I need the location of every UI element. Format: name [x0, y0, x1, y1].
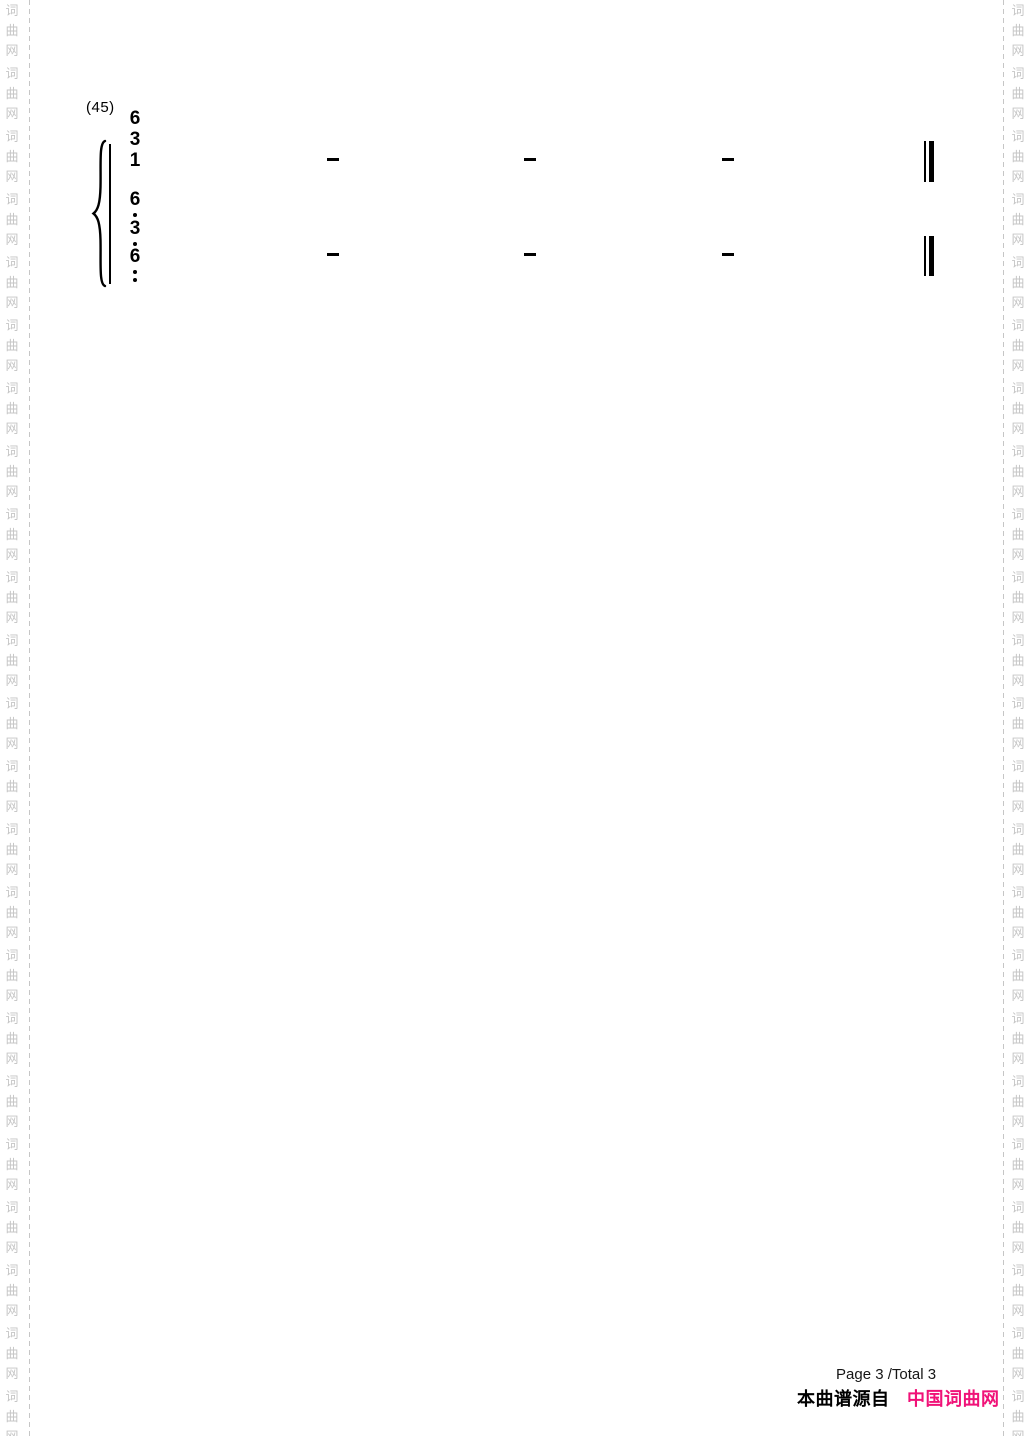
watermark-character: 曲: [1009, 84, 1027, 104]
watermark-character: 网: [1009, 167, 1027, 187]
watermark-character: 网: [3, 293, 21, 313]
watermark-character: 词: [1009, 820, 1027, 840]
watermark-character: 词: [1009, 1387, 1027, 1407]
watermark-group: 词曲网: [3, 1198, 21, 1258]
watermark-character: 网: [3, 1301, 21, 1321]
watermark-character: 网: [3, 1364, 21, 1384]
watermark-character: 网: [3, 1112, 21, 1132]
watermark-character: 网: [1009, 545, 1027, 565]
watermark-character: 曲: [1009, 525, 1027, 545]
watermark-group: 词曲网: [3, 883, 21, 943]
watermark-character: 网: [1009, 797, 1027, 817]
watermark-character: 网: [1009, 1175, 1027, 1195]
sustain-dash: [524, 253, 536, 256]
watermark-group: 词曲网: [1009, 442, 1027, 502]
watermark-character: 曲: [3, 1407, 21, 1427]
watermark-character: 词: [3, 379, 21, 399]
watermark-column-left: 词曲网词曲网词曲网词曲网词曲网词曲网词曲网词曲网词曲网词曲网词曲网词曲网词曲网词…: [3, 1, 21, 1436]
watermark-character: 网: [3, 923, 21, 943]
watermark-character: 网: [3, 41, 21, 61]
page-info: Page 3 /Total 3: [836, 1366, 936, 1383]
watermark-character: 词: [1009, 379, 1027, 399]
final-barline-thin: [924, 236, 926, 276]
watermark-character: 网: [1009, 1301, 1027, 1321]
watermark-group: 词曲网: [3, 127, 21, 187]
watermark-character: 曲: [1009, 147, 1027, 167]
watermark-character: 网: [3, 797, 21, 817]
watermark-character: 网: [3, 608, 21, 628]
watermark-character: 网: [1009, 1364, 1027, 1384]
watermark-character: 网: [3, 482, 21, 502]
final-barline-thick: [929, 141, 934, 182]
watermark-character: 曲: [1009, 273, 1027, 293]
watermark-character: 网: [1009, 671, 1027, 691]
watermark-character: 词: [3, 505, 21, 525]
jianpu-note-lower: 6: [126, 190, 144, 210]
watermark-group: 词曲网: [1009, 1387, 1027, 1436]
watermark-character: 曲: [1009, 1407, 1027, 1427]
sustain-dash: [524, 158, 536, 161]
watermark-character: 网: [1009, 986, 1027, 1006]
watermark-group: 词曲网: [1009, 505, 1027, 565]
watermark-character: 曲: [1009, 966, 1027, 986]
final-barline-thick: [929, 236, 934, 276]
watermark-character: 曲: [3, 777, 21, 797]
watermark-group: 词曲网: [1009, 1009, 1027, 1069]
watermark-character: 曲: [1009, 1281, 1027, 1301]
watermark-character: 曲: [1009, 588, 1027, 608]
watermark-group: 词曲网: [1009, 1198, 1027, 1258]
jianpu-note-lower: 3: [126, 219, 144, 239]
watermark-character: 曲: [1009, 903, 1027, 923]
watermark-character: 网: [1009, 608, 1027, 628]
watermark-group: 词曲网: [1009, 883, 1027, 943]
watermark-character: 曲: [3, 840, 21, 860]
watermark-divider-left: [29, 0, 30, 1436]
watermark-character: 曲: [1009, 651, 1027, 671]
watermark-character: 词: [3, 694, 21, 714]
watermark-character: 词: [3, 631, 21, 651]
watermark-group: 词曲网: [3, 946, 21, 1006]
watermark-character: 词: [1009, 1009, 1027, 1029]
watermark-character: 网: [1009, 1049, 1027, 1069]
system-brace-icon: [90, 139, 108, 288]
watermark-group: 词曲网: [1009, 820, 1027, 880]
watermark-character: 词: [1009, 64, 1027, 84]
watermark-character: 曲: [1009, 210, 1027, 230]
watermark-group: 词曲网: [3, 379, 21, 439]
watermark-group: 词曲网: [1009, 316, 1027, 376]
watermark-character: 网: [1009, 734, 1027, 754]
watermark-group: 词曲网: [3, 820, 21, 880]
watermark-character: 曲: [1009, 840, 1027, 860]
watermark-character: 曲: [3, 1344, 21, 1364]
jianpu-note-upper: 1: [126, 151, 144, 171]
watermark-character: 词: [3, 1198, 21, 1218]
watermark-character: 曲: [3, 903, 21, 923]
watermark-character: 词: [3, 1135, 21, 1155]
watermark-character: 曲: [1009, 1029, 1027, 1049]
watermark-character: 曲: [1009, 1344, 1027, 1364]
watermark-character: 曲: [3, 1029, 21, 1049]
watermark-group: 词曲网: [3, 316, 21, 376]
jianpu-note-upper: 3: [126, 130, 144, 150]
jianpu-note-lower: 6: [126, 247, 144, 267]
watermark-character: 网: [1009, 482, 1027, 502]
watermark-character: 词: [1009, 1, 1027, 21]
watermark-character: 网: [1009, 293, 1027, 313]
watermark-character: 词: [1009, 757, 1027, 777]
watermark-character: 网: [3, 860, 21, 880]
watermark-character: 网: [3, 734, 21, 754]
watermark-character: 曲: [3, 1281, 21, 1301]
watermark-character: 曲: [3, 336, 21, 356]
watermark-character: 曲: [3, 147, 21, 167]
watermark-group: 词曲网: [1009, 946, 1027, 1006]
sustain-dash: [722, 158, 734, 161]
watermark-character: 曲: [3, 1218, 21, 1238]
watermark-group: 词曲网: [3, 757, 21, 817]
watermark-group: 词曲网: [1009, 127, 1027, 187]
watermark-character: 网: [3, 230, 21, 250]
watermark-column-right: 词曲网词曲网词曲网词曲网词曲网词曲网词曲网词曲网词曲网词曲网词曲网词曲网词曲网词…: [1009, 1, 1027, 1436]
watermark-character: 网: [3, 671, 21, 691]
watermark-character: 词: [1009, 442, 1027, 462]
watermark-divider-right: [1003, 0, 1004, 1436]
watermark-group: 词曲网: [3, 1261, 21, 1321]
watermark-group: 词曲网: [3, 505, 21, 565]
watermark-character: 网: [1009, 356, 1027, 376]
watermark-group: 词曲网: [3, 568, 21, 628]
low-octave-dot: [133, 278, 137, 282]
watermark-character: 曲: [3, 273, 21, 293]
watermark-character: 词: [1009, 946, 1027, 966]
watermark-group: 词曲网: [3, 1387, 21, 1436]
watermark-character: 词: [3, 316, 21, 336]
watermark-character: 曲: [1009, 1092, 1027, 1112]
watermark-group: 词曲网: [3, 64, 21, 124]
watermark-group: 词曲网: [1009, 694, 1027, 754]
watermark-character: 词: [3, 1, 21, 21]
watermark-character: 词: [3, 442, 21, 462]
watermark-character: 曲: [3, 1155, 21, 1175]
watermark-character: 词: [1009, 1135, 1027, 1155]
final-barline-thin: [924, 141, 926, 182]
watermark-character: 网: [3, 1175, 21, 1195]
watermark-character: 词: [3, 64, 21, 84]
watermark-character: 网: [1009, 1112, 1027, 1132]
watermark-character: 词: [3, 568, 21, 588]
watermark-character: 曲: [1009, 1155, 1027, 1175]
watermark-character: 网: [3, 104, 21, 124]
watermark-character: 词: [1009, 1198, 1027, 1218]
watermark-character: 曲: [3, 525, 21, 545]
watermark-character: 曲: [3, 399, 21, 419]
watermark-character: 曲: [1009, 21, 1027, 41]
watermark-character: 曲: [1009, 399, 1027, 419]
watermark-character: 曲: [1009, 714, 1027, 734]
sustain-dash: [722, 253, 734, 256]
sustain-dash: [327, 253, 339, 256]
watermark-character: 曲: [3, 210, 21, 230]
watermark-character: 网: [3, 1427, 21, 1436]
watermark-character: 曲: [1009, 336, 1027, 356]
watermark-group: 词曲网: [1009, 64, 1027, 124]
watermark-character: 网: [1009, 860, 1027, 880]
watermark-character: 词: [3, 757, 21, 777]
watermark-group: 词曲网: [1009, 1, 1027, 61]
sustain-dash: [327, 158, 339, 161]
watermark-group: 词曲网: [3, 442, 21, 502]
low-octave-dot: [133, 213, 137, 217]
watermark-character: 网: [3, 1049, 21, 1069]
watermark-group: 词曲网: [3, 631, 21, 691]
watermark-character: 网: [3, 356, 21, 376]
watermark-character: 曲: [3, 651, 21, 671]
watermark-group: 词曲网: [1009, 1135, 1027, 1195]
watermark-character: 曲: [3, 462, 21, 482]
watermark-group: 词曲网: [1009, 1324, 1027, 1384]
score-page: 词曲网词曲网词曲网词曲网词曲网词曲网词曲网词曲网词曲网词曲网词曲网词曲网词曲网词…: [0, 0, 1030, 1436]
watermark-character: 词: [1009, 316, 1027, 336]
watermark-character: 词: [1009, 1324, 1027, 1344]
watermark-character: 曲: [3, 588, 21, 608]
watermark-group: 词曲网: [3, 190, 21, 250]
watermark-group: 词曲网: [1009, 190, 1027, 250]
watermark-group: 词曲网: [3, 694, 21, 754]
watermark-character: 曲: [3, 1092, 21, 1112]
watermark-character: 词: [1009, 1261, 1027, 1281]
source-prefix: 本曲谱源自: [797, 1385, 890, 1411]
watermark-character: 词: [1009, 1072, 1027, 1092]
watermark-character: 曲: [1009, 462, 1027, 482]
watermark-character: 网: [1009, 1427, 1027, 1436]
watermark-character: 网: [1009, 230, 1027, 250]
watermark-character: 词: [3, 1261, 21, 1281]
watermark-character: 曲: [1009, 777, 1027, 797]
watermark-character: 网: [3, 419, 21, 439]
watermark-character: 词: [3, 1072, 21, 1092]
watermark-character: 曲: [3, 84, 21, 104]
source-site-link[interactable]: 中国词曲网: [907, 1385, 1000, 1411]
watermark-character: 网: [3, 986, 21, 1006]
watermark-group: 词曲网: [1009, 253, 1027, 313]
watermark-character: 词: [3, 946, 21, 966]
watermark-group: 词曲网: [1009, 568, 1027, 628]
watermark-character: 词: [3, 190, 21, 210]
watermark-group: 词曲网: [3, 253, 21, 313]
measure-number: (45): [86, 99, 115, 116]
watermark-character: 词: [1009, 568, 1027, 588]
watermark-group: 词曲网: [3, 1324, 21, 1384]
watermark-character: 网: [3, 545, 21, 565]
watermark-character: 词: [3, 1387, 21, 1407]
watermark-character: 曲: [3, 714, 21, 734]
watermark-character: 曲: [3, 21, 21, 41]
watermark-character: 曲: [1009, 1218, 1027, 1238]
watermark-group: 词曲网: [1009, 1261, 1027, 1321]
watermark-character: 网: [3, 167, 21, 187]
watermark-group: 词曲网: [3, 1, 21, 61]
watermark-character: 词: [3, 253, 21, 273]
watermark-character: 网: [1009, 923, 1027, 943]
watermark-character: 词: [1009, 694, 1027, 714]
watermark-character: 词: [1009, 505, 1027, 525]
watermark-group: 词曲网: [1009, 379, 1027, 439]
low-octave-dot: [133, 270, 137, 274]
watermark-group: 词曲网: [3, 1009, 21, 1069]
watermark-character: 词: [3, 883, 21, 903]
system-start-barline: [109, 144, 111, 284]
watermark-group: 词曲网: [1009, 1072, 1027, 1132]
watermark-character: 网: [1009, 41, 1027, 61]
watermark-character: 词: [3, 1324, 21, 1344]
watermark-character: 词: [3, 1009, 21, 1029]
watermark-group: 词曲网: [3, 1135, 21, 1195]
watermark-character: 网: [3, 1238, 21, 1258]
watermark-group: 词曲网: [1009, 757, 1027, 817]
watermark-character: 词: [3, 127, 21, 147]
watermark-character: 词: [1009, 883, 1027, 903]
watermark-character: 网: [1009, 419, 1027, 439]
watermark-character: 曲: [3, 966, 21, 986]
watermark-character: 网: [1009, 104, 1027, 124]
watermark-group: 词曲网: [3, 1072, 21, 1132]
watermark-character: 网: [1009, 1238, 1027, 1258]
watermark-group: 词曲网: [1009, 631, 1027, 691]
watermark-character: 词: [1009, 190, 1027, 210]
watermark-character: 词: [1009, 253, 1027, 273]
watermark-character: 词: [3, 820, 21, 840]
jianpu-note-upper: 6: [126, 109, 144, 129]
watermark-character: 词: [1009, 127, 1027, 147]
watermark-character: 词: [1009, 631, 1027, 651]
